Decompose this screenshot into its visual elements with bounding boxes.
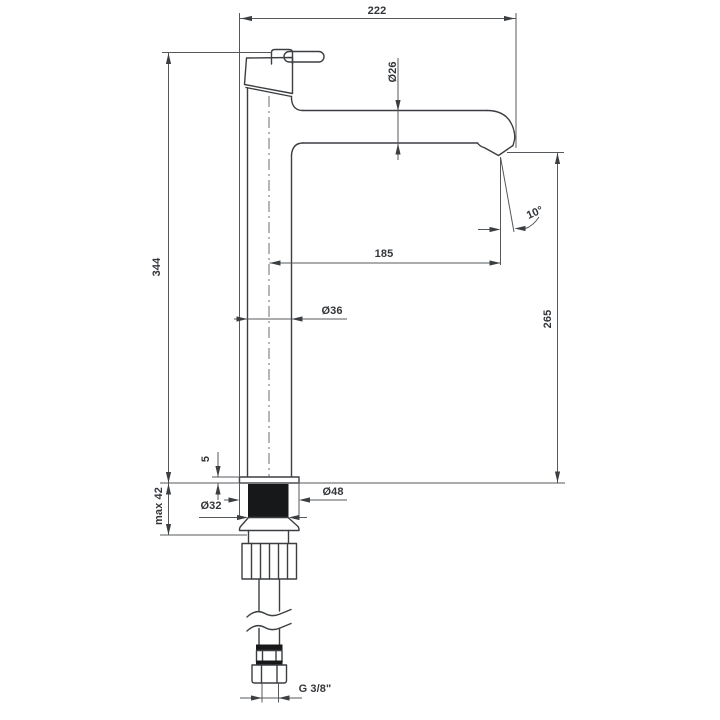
dimension-label-hole-diameter: Ø32 xyxy=(189,500,233,512)
angle-slant-line xyxy=(501,157,515,232)
dimension-label-height-total: 344 xyxy=(151,247,163,287)
break-line-lower xyxy=(247,624,291,632)
cone-washer xyxy=(240,518,300,531)
dimension-label-body-diameter: Ø36 xyxy=(310,305,354,317)
dimension-label-spout-height: 265 xyxy=(542,299,554,339)
faucet-head xyxy=(245,58,293,97)
mounting-gasket xyxy=(249,485,289,518)
dimension-lines xyxy=(160,13,565,703)
faucet-line-art xyxy=(0,0,720,720)
dimension-arrowheads xyxy=(166,16,560,701)
technical-drawing-canvas: 222 185 Ø36 Ø48 Ø32 G 3/8" 344 max 42 Ø2… xyxy=(0,0,720,720)
dimension-label-plate-thickness: 5 xyxy=(200,449,212,469)
dimension-label-base-diameter: Ø48 xyxy=(311,486,355,498)
ext-lines-thread xyxy=(262,683,279,703)
dimension-label-width-total: 222 xyxy=(357,5,397,17)
base-plate xyxy=(240,477,300,483)
hose-hex-nut xyxy=(252,665,287,683)
mounting-assembly xyxy=(240,477,300,579)
faucet-handle xyxy=(272,50,325,65)
dimension-label-thread: G 3/8" xyxy=(290,683,340,695)
supply-hose xyxy=(247,579,291,683)
dimension-label-mounting-max: max 42 xyxy=(153,479,165,533)
dimension-label-spout-diameter: Ø26 xyxy=(387,50,399,94)
spout-outlet-tip xyxy=(478,143,514,156)
dimension-label-spout-reach: 185 xyxy=(364,248,404,260)
faucet-spout xyxy=(292,99,515,156)
break-line-upper xyxy=(247,610,291,618)
